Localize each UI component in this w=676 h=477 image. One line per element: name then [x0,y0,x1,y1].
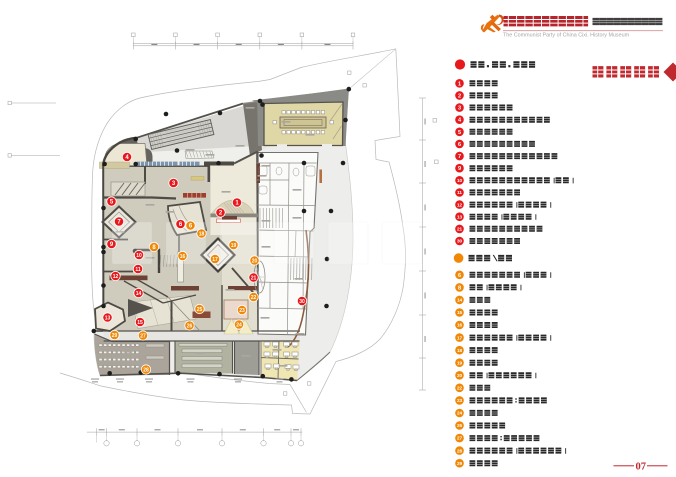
svg-text:17: 17 [212,257,218,263]
svg-text:12: 12 [113,274,119,280]
svg-text:21: 21 [457,227,463,232]
svg-text:24: 24 [236,322,242,328]
svg-text:30: 30 [299,299,305,305]
svg-text:29: 29 [457,461,463,466]
svg-text:14: 14 [457,298,463,303]
svg-text:07: 07 [635,461,646,472]
svg-text:28: 28 [143,367,149,373]
svg-text:27: 27 [140,333,146,339]
svg-text:16: 16 [457,323,463,328]
svg-text:11: 11 [457,190,462,195]
svg-text:22: 22 [457,386,463,391]
svg-text:13: 13 [105,315,111,321]
svg-text:18: 18 [199,231,205,237]
svg-text:22: 22 [251,295,257,301]
svg-text:23: 23 [239,308,245,314]
svg-text:17: 17 [457,335,463,340]
svg-text:11: 11 [135,267,141,273]
svg-text:28: 28 [457,448,463,453]
svg-text:20: 20 [457,373,463,378]
svg-text:15: 15 [457,310,463,315]
svg-text:24: 24 [457,411,463,416]
svg-text:15: 15 [137,320,143,326]
svg-text:7: 7 [458,154,461,160]
svg-text:19: 19 [231,243,237,249]
svg-text:16: 16 [180,254,186,260]
svg-text:9: 9 [458,166,461,172]
svg-text:26: 26 [187,323,193,329]
svg-text:25: 25 [197,307,203,313]
svg-text:27: 27 [457,436,463,441]
svg-text:14: 14 [136,291,142,297]
svg-text:6: 6 [458,142,461,148]
svg-text:30: 30 [457,239,463,244]
svg-text:10: 10 [457,178,463,183]
svg-text:23: 23 [457,398,463,403]
svg-text:26: 26 [457,423,463,428]
svg-text:19: 19 [457,360,463,365]
svg-text:20: 20 [252,258,258,264]
svg-text:12: 12 [457,202,463,207]
svg-text:18: 18 [457,348,463,353]
svg-text:3: 3 [458,106,461,112]
svg-text:10: 10 [136,253,142,259]
svg-text:1: 1 [458,81,461,87]
svg-text:21: 21 [251,275,257,281]
svg-text:6: 6 [458,273,461,279]
svg-text:29: 29 [112,333,118,339]
svg-text:2: 2 [458,93,461,99]
svg-text:8: 8 [458,285,461,291]
svg-text:13: 13 [457,214,463,219]
svg-text:5: 5 [458,130,461,136]
svg-text:The Communist Party of China C: The Communist Party of China Cixi. Histo… [503,33,630,39]
